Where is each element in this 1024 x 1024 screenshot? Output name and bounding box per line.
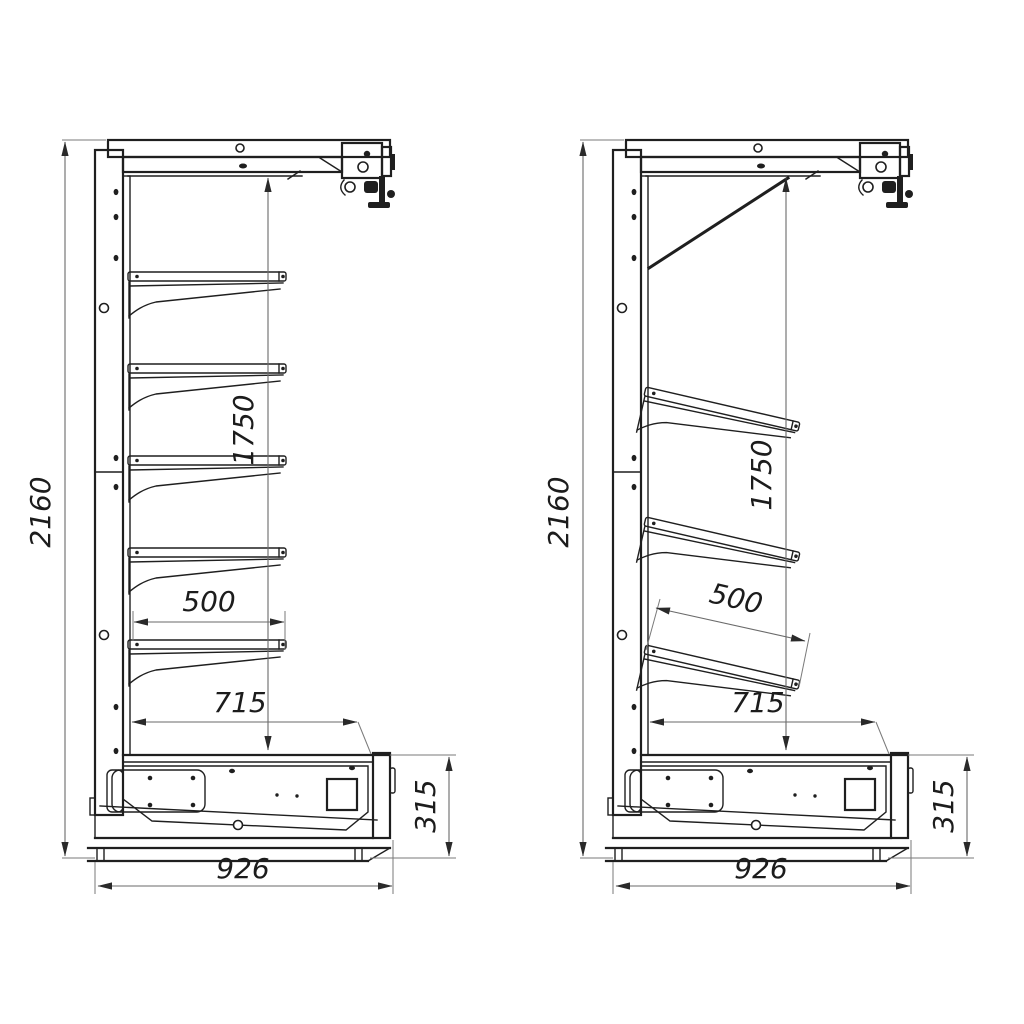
right-canopy (626, 140, 913, 208)
right-base-unit (606, 753, 913, 861)
right-dimensions: 2160 1750 500 715 315 926 (542, 140, 974, 894)
left-structure (88, 140, 395, 861)
dim-overall-depth-right: 926 (734, 852, 787, 885)
dim-overall-depth-left: 926 (216, 852, 269, 885)
dim-base-height-right: 315 (927, 779, 960, 832)
dim-shelf-zone-right: 1750 (745, 439, 778, 510)
dim-overall-height-left: 2160 (24, 476, 57, 547)
left-canopy (108, 140, 395, 208)
right-diagonal-brace (649, 178, 788, 268)
left-base-unit (88, 753, 395, 861)
dim-well-depth-right: 715 (731, 686, 784, 719)
left-shelf-1 (128, 272, 286, 318)
left-shelf-5 (128, 640, 286, 686)
left-shelf-2 (128, 364, 286, 410)
dim-shelf-depth-left: 500 (182, 585, 235, 618)
shelving-unit-technical-drawing: 2160 1750 500 715 315 926 (0, 0, 1024, 1024)
left-shelf-3 (128, 456, 286, 502)
dim-shelf-depth-right: 500 (706, 577, 766, 621)
dim-overall-height-right: 2160 (542, 476, 575, 547)
dim-shelf-zone-left: 1750 (227, 394, 260, 465)
left-dimensions: 2160 1750 500 715 315 926 (24, 140, 456, 894)
left-back-post (95, 150, 130, 815)
right-back-post (613, 150, 648, 815)
dim-well-depth-left: 715 (213, 686, 266, 719)
dim-base-height-left: 315 (409, 779, 442, 832)
technical-drawing-page: 2160 1750 500 715 315 926 (0, 0, 1024, 1024)
view-left-straight-shelves: 2160 1750 500 715 315 926 (24, 140, 456, 894)
view-right-inclined-shelves: 2160 1750 500 715 315 926 (542, 140, 974, 894)
